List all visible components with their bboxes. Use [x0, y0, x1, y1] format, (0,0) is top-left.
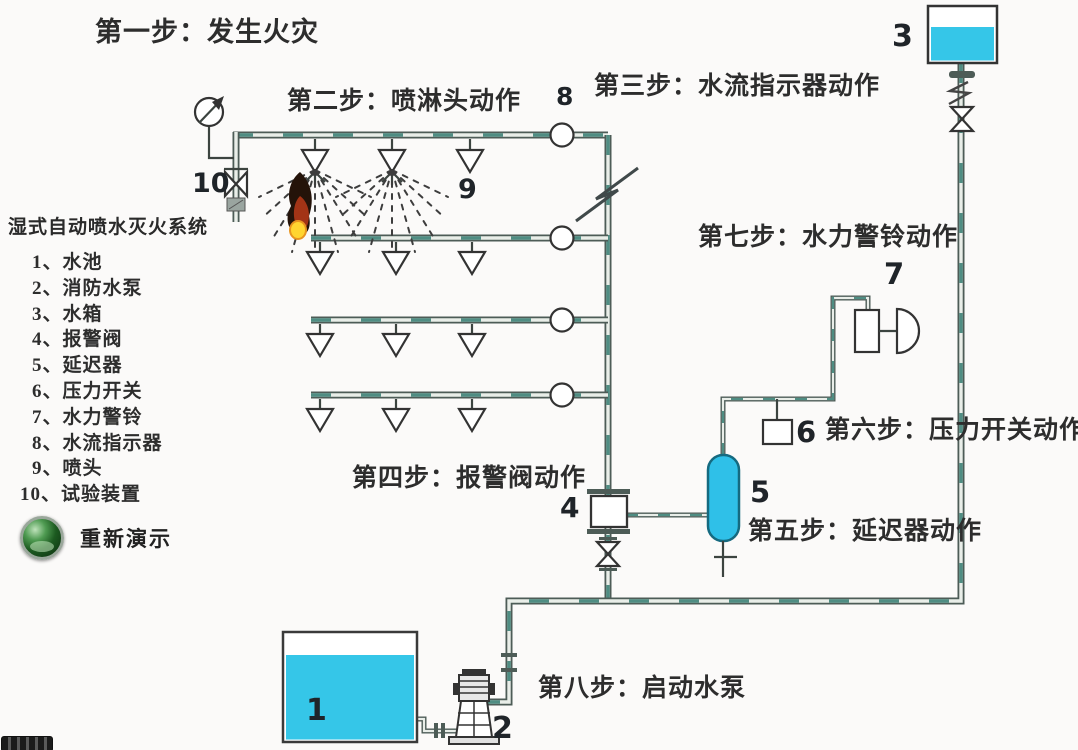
pipe-pump-suction [417, 719, 457, 738]
alarm-drain-valve [597, 537, 619, 571]
component-number-test-device: 10 [192, 170, 230, 197]
hydraulic-alarm-bell [855, 309, 919, 353]
sprinkler-row4-3 [459, 399, 485, 431]
delay-device [708, 455, 739, 577]
legend-item-2: 2、消防水泵 [2, 276, 163, 302]
component-number-alarm-bell: 7 [884, 260, 904, 289]
legend-list: 1、水池 2、消防水泵 3、水箱 4、报警阀 5、延迟器 6、压力开关 7、水力… [2, 250, 163, 508]
pressure-switch [763, 399, 792, 444]
water-flow-indicator-row1 [551, 124, 574, 147]
legend-item-1: 1、水池 [2, 250, 163, 276]
legend-item-3: 3、水箱 [2, 302, 163, 328]
component-number-alarm-valve: 4 [560, 494, 579, 522]
component-number-water-pool: 1 [306, 696, 327, 726]
sprinkler-row3-3 [459, 324, 485, 356]
sprinkler-row3-1 [307, 324, 333, 356]
watermark-badge [1, 736, 53, 750]
step-1-label: 第一步：发生火灾 [95, 18, 319, 48]
pipe-tank-riser-and-bottom-main [488, 63, 961, 702]
step-8-label: 第八步：启动水泵 [538, 675, 746, 703]
alarm-valve [587, 489, 630, 534]
step-3-label: 第三步：水流指示器动作 [594, 73, 880, 101]
sprinkler-row2-1 [307, 242, 333, 274]
component-number-pressure-switch: 6 [796, 418, 816, 447]
replay-button-label: 重新演示 [80, 523, 172, 553]
water-flow-indicator-row3 [551, 309, 574, 332]
roof-water-tank [928, 6, 997, 63]
sprinkler-row2-3 [459, 242, 485, 274]
legend-item-9: 9、喷头 [2, 456, 163, 482]
component-number-fire-pump: 2 [492, 714, 513, 744]
component-number-delay-device: 5 [750, 478, 770, 507]
component-number-sprinkler: 9 [458, 176, 477, 203]
wet-sprinkler-system-diagram: 第一步：发生火灾 第二步：喷淋头动作 第三步：水流指示器动作 第七步：水力警铃动… [0, 0, 1078, 750]
step-2-label: 第二步：喷淋头动作 [287, 88, 521, 116]
pressure-gauge [195, 96, 234, 158]
sprinkler-row3-2 [383, 324, 409, 356]
step-7-label: 第七步：水力警铃动作 [698, 224, 958, 252]
legend-item-4: 4、报警阀 [2, 327, 163, 353]
component-number-water-tank: 3 [892, 22, 913, 52]
legend-item-7: 7、水力警铃 [2, 405, 163, 431]
legend-item-6: 6、压力开关 [2, 379, 163, 405]
sprinkler-row4-2 [383, 399, 409, 431]
water-pool-tank [283, 632, 417, 742]
replay-button[interactable]: 重新演示 [20, 516, 172, 560]
step-4-label: 第四步：报警阀动作 [352, 465, 586, 493]
sprinkler-row2-2 [383, 242, 409, 274]
system-title: 湿式自动喷水灭火系统 [8, 212, 208, 239]
component-number-flow-indicator: 8 [556, 84, 573, 109]
legend-item-8: 8、水流指示器 [2, 431, 163, 457]
water-flow-indicator-row4 [551, 384, 574, 407]
sprinkler-row4-1 [307, 399, 333, 431]
water-flow-indicator-row2 [551, 227, 574, 250]
step-6-label: 第六步：压力开关动作 [825, 417, 1078, 445]
legend-item-5: 5、延迟器 [2, 353, 163, 379]
step-5-label: 第五步：延迟器动作 [748, 518, 982, 546]
sprinkler-row1-3 [457, 139, 483, 172]
replay-orb-icon[interactable] [20, 516, 64, 560]
legend-item-10: 10、试验装置 [2, 482, 163, 508]
